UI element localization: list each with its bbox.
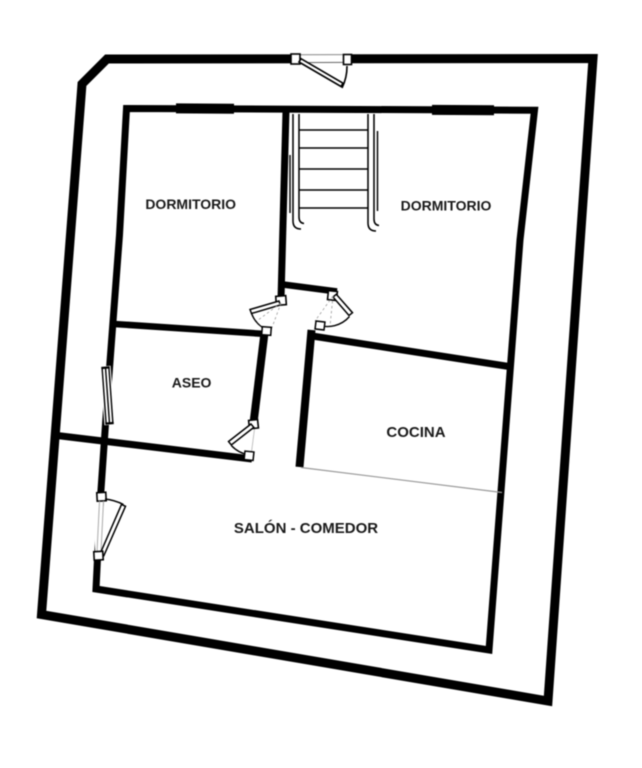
svg-text:COCINA: COCINA — [386, 424, 445, 441]
svg-text:ASEO: ASEO — [172, 375, 212, 391]
svg-text:DORMITORIO: DORMITORIO — [401, 198, 492, 214]
svg-text:DORMITORIO: DORMITORIO — [145, 196, 236, 212]
svg-text:SALÓN - COMEDOR: SALÓN - COMEDOR — [234, 519, 378, 537]
